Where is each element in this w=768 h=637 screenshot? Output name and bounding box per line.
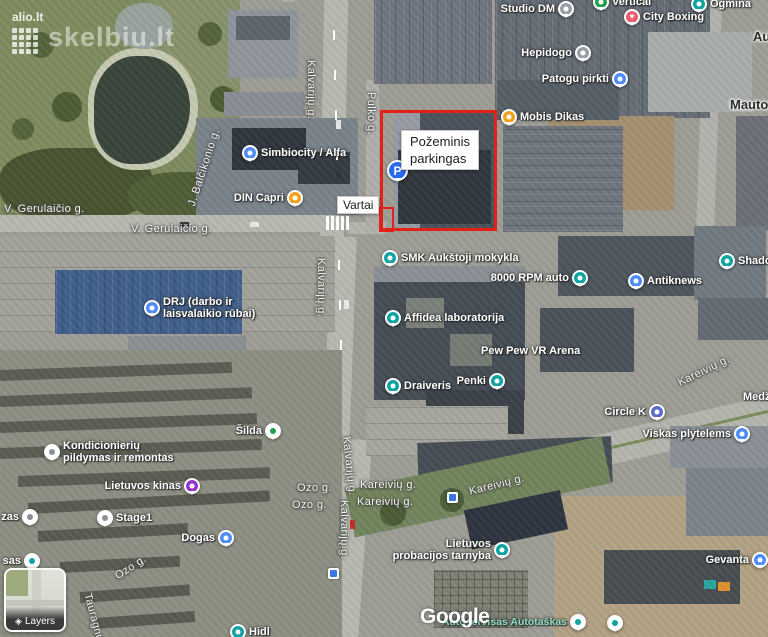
street-label: Kalvarijų g. (338, 500, 350, 559)
probacijos-label[interactable]: Lietuvosprobacijos tarnyba (393, 538, 491, 562)
shopping-bag-icon (618, 77, 623, 82)
vertical-label-line1: Vertical (612, 0, 651, 8)
terrain-shape (333, 30, 335, 40)
shopping-bag-icon (697, 2, 702, 7)
street-label: V. Gerulaičio g. (4, 203, 85, 215)
terrain-shape (350, 520, 355, 529)
pew-pew-label-line1: Pew Pew VR Arena (481, 345, 580, 357)
satellite-map[interactable]: Požeminis parkingas Vartai alio.lt skelb… (0, 0, 768, 637)
pew-pew-label[interactable]: Pew Pew VR Arena (481, 345, 580, 357)
simbiocity-alfa-label-line1: Simbiocity / Alfa (261, 147, 346, 159)
terrain-shape (341, 216, 344, 230)
affidea-label[interactable]: Affidea laboratorija (404, 312, 504, 324)
dot-icon (236, 630, 241, 635)
antiknews-label[interactable]: Antiknews (647, 275, 702, 287)
shado-partial-label[interactable]: Shado (738, 255, 768, 267)
medz-partial-label-line1: Medž (743, 391, 768, 403)
shopping-bag-icon (740, 432, 745, 437)
terrain-shape (339, 300, 341, 310)
terrain-shape (334, 70, 336, 80)
street-label: Kalvarijų g. (305, 60, 317, 119)
viskas-plytelems-pin[interactable] (734, 426, 750, 442)
drj-label[interactable]: DRJ (darbo irlaisvalaikio rūbai) (163, 296, 255, 320)
drj-label-line1: DRJ (darbo ir (163, 296, 233, 308)
circle-k-pin[interactable] (649, 404, 665, 420)
dot-icon (49, 449, 55, 455)
penki-label[interactable]: Penki (457, 375, 486, 387)
antiknews-pin[interactable] (628, 273, 644, 289)
unnamed-pin-pin[interactable] (607, 615, 623, 631)
patogu-pirkti-label-line1: Patogu pirkti (542, 73, 609, 85)
gas-station-icon (655, 410, 660, 415)
ogmina-label[interactable]: Ogmina (710, 0, 751, 10)
patogu-pirkti-pin[interactable] (612, 71, 628, 87)
dot-icon (270, 428, 276, 434)
shado-partial-pin[interactable] (719, 253, 735, 269)
smk-label-line1: SMK Aukštoji mokykla (401, 252, 519, 264)
terrain-shape (52, 92, 82, 122)
rpm-8000-label[interactable]: 8000 RPM auto (491, 272, 569, 284)
mobis-dikas-pin[interactable] (501, 109, 517, 125)
dot-icon (29, 558, 35, 564)
drj-pin[interactable] (144, 300, 160, 316)
affidea-label-line1: Affidea laboratorija (404, 312, 504, 324)
alio-watermark-text: alio.lt (12, 10, 43, 24)
draiveris-pin[interactable] (385, 378, 401, 394)
circle-k-label[interactable]: Circle K (604, 406, 646, 418)
terrain-shape (540, 308, 634, 372)
simbiocity-alfa-label[interactable]: Simbiocity / Alfa (261, 147, 346, 159)
terrain-shape (224, 92, 304, 116)
hidl-partial-label-line1: Hidl (249, 626, 270, 637)
terrain-shape (331, 216, 334, 230)
dot-icon (725, 259, 730, 264)
shopping-bag-icon (758, 558, 763, 563)
antiknews-label-line1: Antiknews (647, 275, 702, 287)
din-capri-label-line1: DIN Capri (234, 192, 284, 204)
school-icon (388, 256, 393, 261)
terrain-shape (704, 580, 716, 589)
vertical-label[interactable]: Vertical (612, 0, 651, 8)
terrain-shape (344, 300, 349, 309)
studio-dm-pin[interactable] (558, 1, 574, 17)
zas-partial-pin[interactable] (22, 509, 38, 525)
parking-callout-line1: Požeminis (410, 133, 470, 150)
penki-pin[interactable] (489, 373, 505, 389)
alio-logo-dots-icon (12, 28, 38, 54)
city-boxing-label-line1: City Boxing (643, 11, 704, 23)
terrain-shape (686, 460, 768, 536)
draiveris-label-line1: Draiveris (404, 380, 451, 392)
skelbiu-watermark: skelbiu.lt (48, 22, 175, 53)
street-label: Pulko g. (365, 92, 377, 135)
kondicionieriu-label[interactable]: Kondicionieriųpildymas ir remontas (63, 440, 174, 464)
din-capri-label[interactable]: DIN Capri (234, 192, 284, 204)
terrain-shape (336, 120, 341, 129)
hepidogo-label[interactable]: Hepidogo (521, 47, 572, 59)
rpm-8000-label-line1: 8000 RPM auto (491, 272, 569, 284)
vartai-callout: Vartai (337, 196, 379, 214)
terrain-shape (718, 582, 730, 591)
sas-partial-label[interactable]: sas (3, 555, 21, 567)
terrain-shape (336, 170, 341, 179)
patogu-pirkti-label[interactable]: Patogu pirkti (542, 73, 609, 85)
terrain-shape (335, 110, 337, 120)
stage1-label-line1: Stage1 (116, 512, 152, 524)
street-label: Kareivių g. (360, 479, 416, 491)
dot-icon (578, 276, 583, 281)
bus-glyph-icon (330, 570, 337, 577)
silda-pin[interactable] (265, 423, 281, 439)
stage1-pin[interactable] (97, 510, 113, 526)
dot-icon (564, 7, 569, 12)
city-boxing-label[interactable]: City Boxing (643, 11, 704, 23)
studio-dm-label[interactable]: Studio DM (501, 3, 555, 15)
layers-button-label: Layers (25, 616, 55, 627)
medz-partial-label[interactable]: Medž (743, 391, 768, 403)
terrain-shape (346, 216, 349, 230)
smk-label[interactable]: SMK Aukštoji mokykla (401, 252, 519, 264)
dogas-pin[interactable] (218, 530, 234, 546)
gevanta-label-line1: Gevanta (706, 554, 749, 566)
penki-label-line1: Penki (457, 375, 486, 387)
dot-icon (581, 51, 586, 56)
dot-icon (27, 514, 33, 520)
dogas-label-line1: Dogas (181, 532, 215, 544)
heart-icon: ♥ (626, 13, 638, 21)
affidea-pin[interactable] (385, 310, 401, 326)
probacijos-pin[interactable] (494, 542, 510, 558)
vartai-label: Vartai (343, 198, 373, 212)
dot-icon (391, 384, 396, 389)
sas-partial-pin[interactable] (24, 553, 40, 569)
lietuvos-kinas-pin[interactable] (184, 478, 200, 494)
terrain-shape (326, 216, 329, 230)
dot-icon (612, 620, 618, 626)
dot-icon (102, 515, 108, 521)
shopping-bag-icon (634, 279, 639, 284)
parking-callout: Požeminis parkingas (401, 130, 479, 170)
restaurant-icon (507, 115, 512, 120)
din-capri-pin[interactable] (287, 190, 303, 206)
zas-partial-label-line1: zas (1, 511, 19, 523)
mautor-partial-label[interactable]: Mautor (730, 99, 768, 111)
terrain-shape (698, 298, 768, 340)
alio-watermark: alio.lt (12, 10, 43, 54)
mautor-partial-label-line1: Mautor (730, 97, 768, 112)
terrain-shape (198, 22, 222, 46)
simbiocity-alfa-pin[interactable] (242, 145, 258, 161)
dot-icon (575, 619, 581, 625)
terrain-shape (236, 16, 290, 40)
hidl-partial-label[interactable]: Hidl (249, 626, 270, 637)
dogas-label[interactable]: Dogas (181, 532, 215, 544)
probacijos-label-line1: Lietuvos (446, 538, 491, 550)
terrain-shape (374, 0, 492, 84)
medical-icon (391, 316, 396, 321)
kondicionieriu-pin[interactable] (44, 444, 60, 460)
stage1-label[interactable]: Stage1 (116, 512, 152, 524)
hidl-partial-pin[interactable] (230, 624, 246, 637)
bus-stop-icon[interactable] (328, 568, 339, 579)
silda-label-line1: Šilda (236, 425, 262, 437)
terrain-shape (503, 126, 623, 232)
ogmina-label-line1: Ogmina (710, 0, 751, 10)
city-boxing-pin[interactable]: ♥ (624, 9, 640, 25)
sas-partial-label-line1: sas (3, 555, 21, 567)
kondicionieriu-label-line1: Kondicionierių (63, 440, 140, 452)
mobis-dikas-label-line1: Mobis Dikas (520, 111, 584, 123)
street-label: Kareivių g. (357, 496, 413, 508)
rpm-8000-pin[interactable] (572, 270, 588, 286)
viskas-plytelems-label-line1: Viskas plytelems (643, 428, 731, 440)
street-label: Kalvarijų g. (315, 258, 327, 317)
lietuvos-kinas-label-line1: Lietuvos kinas (105, 480, 181, 492)
terrain-shape (340, 340, 342, 350)
gevanta-pin[interactable] (752, 552, 768, 568)
street-label: Ozo g. (297, 482, 332, 494)
dot-icon (500, 548, 505, 553)
autoservisas-pin[interactable] (570, 614, 586, 630)
smk-pin[interactable] (382, 250, 398, 266)
terrain-shape (338, 260, 340, 270)
layers-icon: ◈ (15, 615, 22, 627)
mobis-dikas-label[interactable]: Mobis Dikas (520, 111, 584, 123)
bus-stop-icon[interactable] (447, 492, 458, 503)
gevanta-label[interactable]: Gevanta (706, 554, 749, 566)
dot-icon (599, 0, 604, 5)
probacijos-label-line2: probacijos tarnyba (393, 550, 491, 562)
satellite-terrain (0, 0, 768, 637)
hepidogo-label-line1: Hepidogo (521, 47, 572, 59)
highlight-rectangle-small (379, 207, 394, 232)
au-partial-label-line1: Au (753, 29, 768, 44)
street-label: Ozo g. (292, 499, 327, 511)
shopping-bag-icon (248, 151, 253, 156)
street-label: V. Gerulaičio g. (131, 223, 212, 235)
kondicionieriu-label-line2: pildymas ir remontas (63, 452, 174, 464)
google-logo: Google (420, 605, 489, 629)
silda-label[interactable]: Šilda (236, 425, 262, 437)
terrain-shape (12, 118, 34, 140)
hepidogo-pin[interactable] (575, 45, 591, 61)
bus-glyph-icon (449, 494, 456, 501)
drj-label-line2: laisvalaikio rūbai) (163, 308, 255, 320)
layers-button[interactable]: ◈ Layers (4, 568, 66, 632)
shopping-bag-icon (224, 536, 229, 541)
viskas-plytelems-label[interactable]: Viskas plytelems (643, 428, 731, 440)
au-partial-label[interactable]: Au (753, 31, 768, 43)
terrain-shape (336, 216, 339, 230)
terrain-shape (250, 222, 259, 227)
shopping-bag-icon (150, 306, 155, 311)
lietuvos-kinas-label[interactable]: Lietuvos kinas (105, 480, 181, 492)
shado-partial-label-line1: Shado (738, 255, 768, 267)
draiveris-label[interactable]: Draiveris (404, 380, 451, 392)
studio-dm-label-line1: Studio DM (501, 3, 555, 15)
restaurant-icon (293, 196, 298, 201)
dot-icon (495, 379, 500, 384)
movie-icon (190, 484, 195, 489)
zas-partial-label[interactable]: zas (1, 511, 19, 523)
parking-callout-line2: parkingas (410, 150, 470, 167)
circle-k-label-line1: Circle K (604, 406, 646, 418)
layers-thumb-park (6, 570, 28, 596)
terrain-shape (736, 116, 768, 230)
